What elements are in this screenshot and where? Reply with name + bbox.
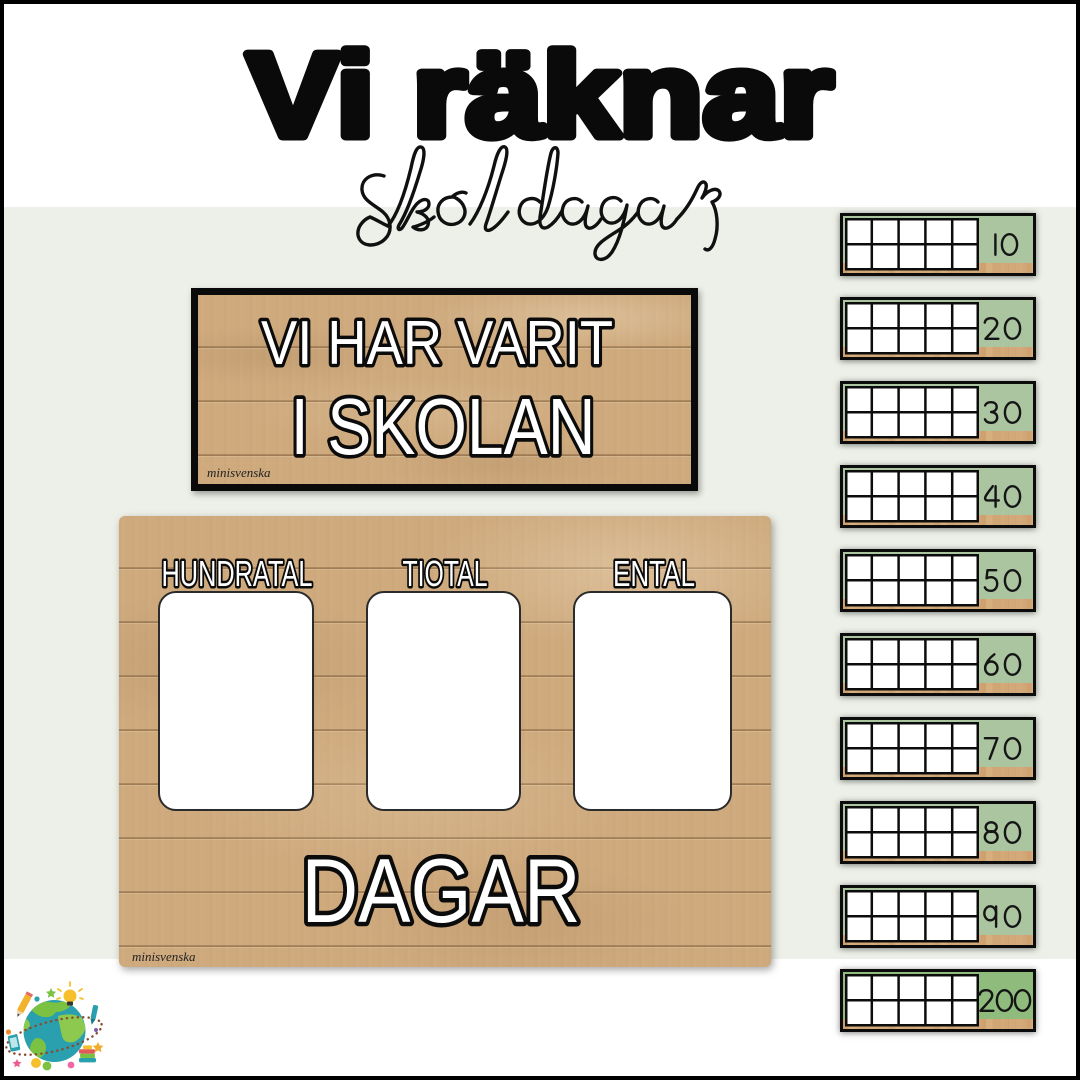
svg-text:Vi räknar: Vi räknar xyxy=(247,29,833,162)
